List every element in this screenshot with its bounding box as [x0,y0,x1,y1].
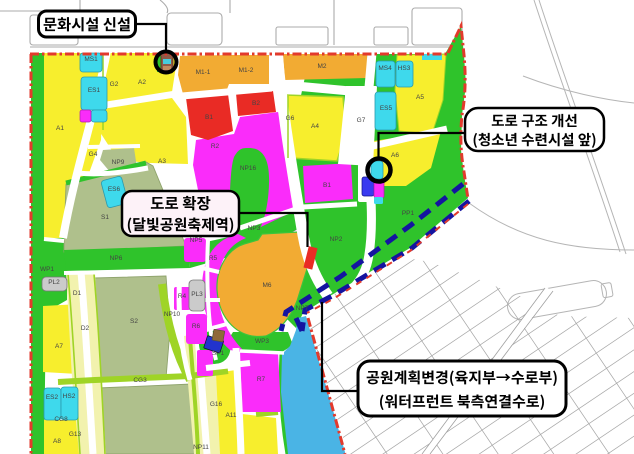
svg-text:M2: M2 [317,63,326,70]
svg-text:R5: R5 [209,255,218,262]
svg-text:CG8: CG8 [54,416,68,423]
svg-text:G6: G6 [286,115,295,122]
svg-text:ES1: ES1 [88,87,101,94]
svg-text:SP1: SP1 [212,350,225,357]
svg-text:HS3: HS3 [398,65,411,72]
svg-text:PL3: PL3 [191,291,203,298]
svg-text:R6: R6 [192,323,201,330]
svg-text:NP2: NP2 [330,236,343,243]
svg-text:CG3: CG3 [133,377,147,384]
svg-text:B1: B1 [323,182,331,189]
svg-text:B1: B1 [205,114,213,121]
svg-text:G13: G13 [69,431,82,438]
svg-text:A7: A7 [55,343,63,350]
svg-text:R7: R7 [257,376,266,383]
svg-text:B2: B2 [252,100,260,107]
svg-text:M1-1: M1-1 [196,69,211,76]
svg-text:NP5: NP5 [190,237,203,244]
svg-text:ES2: ES2 [46,394,59,401]
svg-text:A11: A11 [225,412,236,419]
svg-text:NP3: NP3 [248,225,261,232]
svg-text:A2: A2 [138,79,146,86]
svg-text:G16: G16 [210,401,223,408]
svg-text:A8: A8 [53,438,61,445]
svg-text:ES5: ES5 [380,105,393,112]
svg-text:MS1: MS1 [84,56,98,63]
svg-text:NP9: NP9 [112,159,125,166]
svg-text:M6: M6 [262,282,271,289]
svg-text:R4: R4 [178,293,187,300]
svg-text:G2: G2 [110,81,119,88]
svg-text:WP3: WP3 [255,338,269,345]
svg-text:MS4: MS4 [378,65,392,72]
svg-text:HS2: HS2 [63,393,76,400]
svg-text:PP1: PP1 [402,210,415,217]
svg-text:WP1: WP1 [40,266,54,273]
svg-text:S2: S2 [130,318,138,325]
svg-text:NP6: NP6 [110,255,123,262]
svg-text:NP16: NP16 [240,165,257,172]
svg-text:D2: D2 [81,325,90,332]
svg-text:A3: A3 [158,158,166,165]
svg-text:M1-2: M1-2 [239,67,254,74]
svg-text:A1: A1 [56,125,64,132]
svg-text:NP7: NP7 [296,305,309,312]
svg-text:A4: A4 [311,123,319,130]
svg-text:G7: G7 [357,117,366,124]
svg-text:NP10: NP10 [164,311,181,318]
svg-text:R2: R2 [211,143,220,150]
svg-text:A5: A5 [416,94,424,101]
svg-text:ES6: ES6 [108,186,121,193]
svg-text:NP11: NP11 [193,444,209,451]
svg-text:D1: D1 [73,290,82,297]
svg-text:S1: S1 [101,214,109,221]
svg-text:A6: A6 [391,152,399,159]
svg-text:G4: G4 [89,151,98,158]
svg-text:PL2: PL2 [48,279,60,286]
